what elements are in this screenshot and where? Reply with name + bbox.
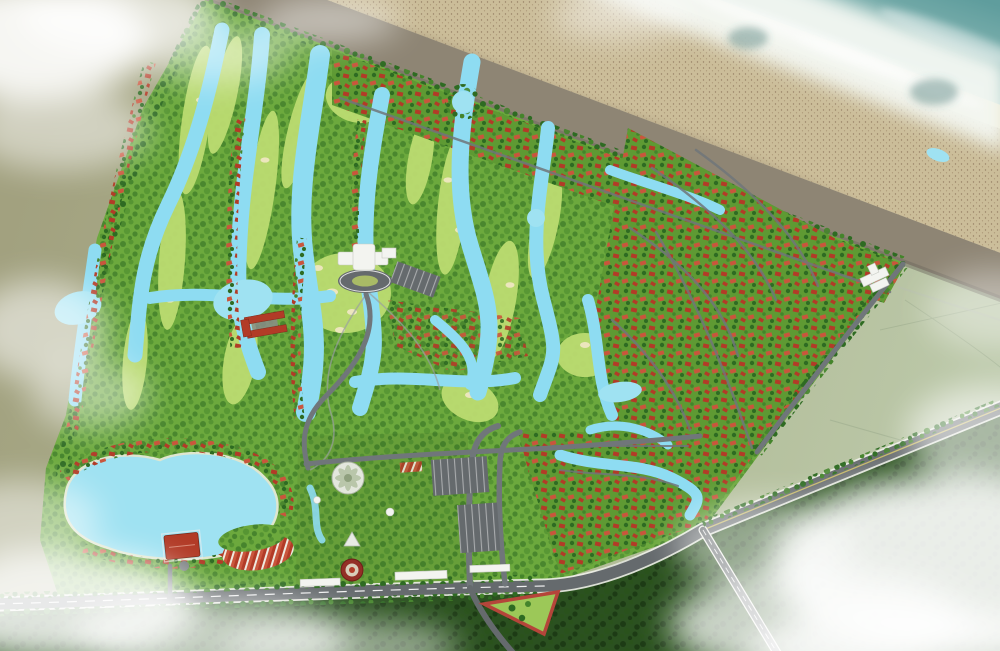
golf-pond xyxy=(527,209,545,227)
flower-mandala xyxy=(332,462,364,494)
park-dome xyxy=(386,508,394,516)
masterplan-rendering xyxy=(0,0,1000,651)
park-pavilion xyxy=(314,497,321,504)
site-plan-svg xyxy=(0,0,1000,651)
flower-garden-plot xyxy=(400,461,423,473)
beach-pond xyxy=(452,91,474,113)
amphitheater xyxy=(341,559,363,581)
